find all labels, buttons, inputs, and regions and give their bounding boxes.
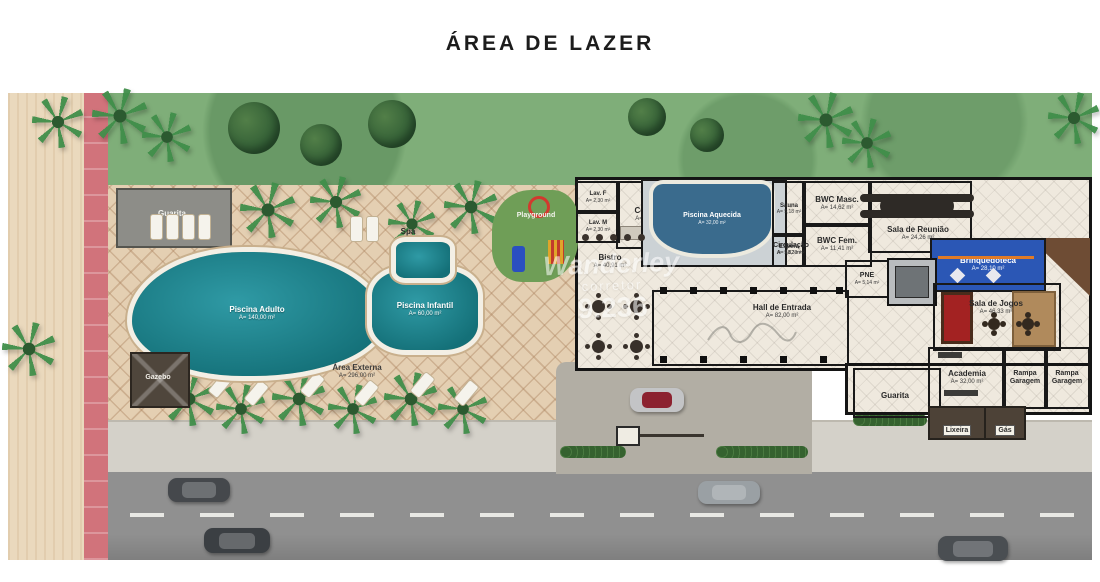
car-roof <box>642 392 672 407</box>
column-icon <box>810 287 817 294</box>
page-title: ÁREA DE LAZER <box>0 32 1100 56</box>
column-icon <box>660 356 667 363</box>
palm-tree-icon <box>2 322 56 376</box>
palm-tree-icon <box>388 200 436 248</box>
palm-tree-icon <box>92 88 148 144</box>
bar-stool-icon <box>582 234 589 241</box>
car-roof <box>953 541 992 557</box>
bistro-table-icon <box>592 300 605 313</box>
bistro-table-icon <box>630 340 643 353</box>
game-table-icon <box>1022 318 1034 330</box>
gym-equipment-icon <box>938 352 962 358</box>
column-icon <box>690 287 697 294</box>
gate-arm <box>640 434 704 437</box>
palm-tree-icon <box>32 96 84 148</box>
room-sauna: Sauna A= 5,18 m² <box>772 181 806 237</box>
sala-jogos-label: Sala de Jogos A= 46,33 m² <box>946 300 1046 316</box>
room-bwc-masc: BWC Masc. A= 14,62 m² <box>802 181 872 227</box>
column-icon <box>780 356 787 363</box>
gate-booth <box>616 426 640 446</box>
bistro-table-icon <box>592 340 605 353</box>
brinquedoteca-stripe <box>938 256 1034 259</box>
palm-tree-icon <box>240 182 296 238</box>
shed-gas: Gás <box>984 406 1026 440</box>
gas-label: Gás <box>995 425 1014 436</box>
column-icon <box>820 356 827 363</box>
circulacao-label: Circulação A= 48,30 m² <box>756 242 826 256</box>
gazebo-label: Gazebo <box>130 374 186 382</box>
slide-icon <box>512 246 525 272</box>
room-rampa-garagem-1: Rampa Garagem <box>1002 347 1048 409</box>
lounger-icon <box>350 216 363 242</box>
car-roof <box>712 485 747 500</box>
gym-equipment-icon <box>944 390 978 396</box>
shed-lixeira: Lixeira <box>928 406 986 440</box>
area-externa-label: Área Externa A= 296,00 m² <box>292 364 422 380</box>
road-lane-marking <box>130 513 1092 517</box>
playground-label: Playground <box>494 212 578 220</box>
elevator <box>887 258 937 306</box>
jogging-path <box>84 93 110 560</box>
column-icon <box>720 287 727 294</box>
lounger-icon <box>198 214 211 240</box>
spa-label: Spa <box>378 228 438 237</box>
hall-entrada-label: Hall de Entrada A= 82,00 m² <box>722 304 842 320</box>
lounger-icon <box>150 214 163 240</box>
car-icon <box>168 478 230 502</box>
site-plan: ÁREA DE LAZER Guarita <box>0 0 1100 582</box>
palm-tree-icon <box>444 180 498 234</box>
room-rampa-garagem-2: Rampa Garagem <box>1044 347 1090 409</box>
spa-pool <box>396 242 450 278</box>
tree-icon <box>228 102 280 154</box>
heated-pool: Piscina Aquecida A= 32,00 m² <box>653 184 771 254</box>
room-pne: PNE A= 5,14 m² <box>845 260 889 298</box>
palm-tree-icon <box>842 118 892 168</box>
bar-stool-icon <box>638 234 645 241</box>
palm-tree-icon <box>1048 92 1100 144</box>
column-icon <box>660 287 667 294</box>
bistro-table-icon <box>630 300 643 313</box>
guarita-bottom-label: Guarita <box>862 392 928 401</box>
lixeira-label: Lixeira <box>943 425 972 436</box>
palm-tree-icon <box>142 112 192 162</box>
bar-stool-icon <box>624 234 631 241</box>
car-icon <box>204 528 270 553</box>
hedge-row <box>560 446 626 458</box>
hall-script-logo <box>700 320 800 348</box>
conference-table <box>880 196 954 216</box>
tree-icon <box>368 100 416 148</box>
car-icon <box>698 481 760 504</box>
car-roof <box>219 533 256 549</box>
column-icon <box>740 356 747 363</box>
tree-icon <box>300 124 342 166</box>
tree-icon <box>690 118 724 152</box>
bar-stool-icon <box>596 234 603 241</box>
play-bars-icon <box>548 240 564 264</box>
bistro-label: Bistro A= 40,91 m² <box>572 254 648 270</box>
lounger-icon <box>182 214 195 240</box>
column-icon <box>780 287 787 294</box>
column-icon <box>700 356 707 363</box>
car-roof <box>182 482 217 497</box>
lounger-icon <box>166 214 179 240</box>
kids-pool: Piscina Infantil A= 60,00 m² <box>372 270 478 350</box>
tree-icon <box>628 98 666 136</box>
bar-stool-icon <box>610 234 617 241</box>
column-icon <box>836 287 843 294</box>
car-icon <box>630 388 684 412</box>
car-icon <box>938 536 1008 561</box>
column-icon <box>750 287 757 294</box>
elevator-cab-icon <box>895 266 929 298</box>
hedge-row <box>716 446 808 458</box>
game-table-icon <box>988 318 1000 330</box>
